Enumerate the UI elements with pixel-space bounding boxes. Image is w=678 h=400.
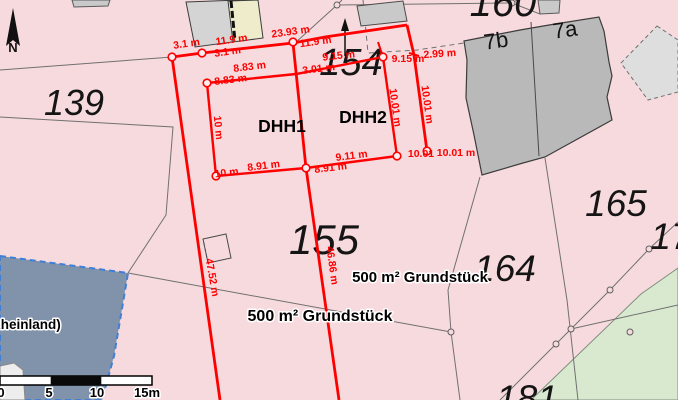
dimension-label: 10.01 bbox=[408, 148, 434, 160]
dimension-label: 10 m bbox=[211, 115, 225, 140]
place-name-label: chlingen (Rheinland) bbox=[0, 317, 61, 332]
north-arrow-label: N bbox=[8, 40, 17, 55]
parcel-label-139: 139 bbox=[44, 82, 104, 123]
scale-tick-15m: 15m bbox=[134, 385, 160, 400]
scale-tick-5: 5 bbox=[45, 385, 52, 400]
scale-tick-0: 0 bbox=[0, 385, 5, 400]
plot-label-dhh1: DHH1 bbox=[258, 116, 306, 136]
area-note-2: 500 m² Grundstück bbox=[248, 308, 393, 325]
dimension-label: 2.99 m bbox=[423, 47, 456, 61]
house-label-7b: 7b bbox=[482, 26, 510, 54]
scale-tick-10: 10 bbox=[90, 385, 104, 400]
parcel-label-165: 165 bbox=[585, 183, 647, 224]
house-label-7a: 7a bbox=[551, 15, 579, 43]
map-canvas[interactable]: 139 154 160 155 165 17 164 181 7b 7a 3.1… bbox=[0, 0, 678, 400]
area-note-1: 500 m² Grundstück bbox=[352, 269, 489, 286]
building-top-left-sliver bbox=[72, 0, 110, 7]
parcel-label-160: 160 bbox=[470, 0, 537, 25]
building-top-right-sliver bbox=[538, 0, 560, 14]
parcel-label-181: 181 bbox=[496, 378, 558, 400]
building-top-center bbox=[357, 1, 407, 26]
parcel-label-17: 17 bbox=[650, 216, 678, 257]
parcel-label-155: 155 bbox=[289, 216, 360, 263]
plot-label-dhh2: DHH2 bbox=[339, 107, 387, 127]
dimension-label: 10.01 m bbox=[437, 147, 476, 159]
dimension-label: 9.15 m bbox=[392, 53, 425, 65]
